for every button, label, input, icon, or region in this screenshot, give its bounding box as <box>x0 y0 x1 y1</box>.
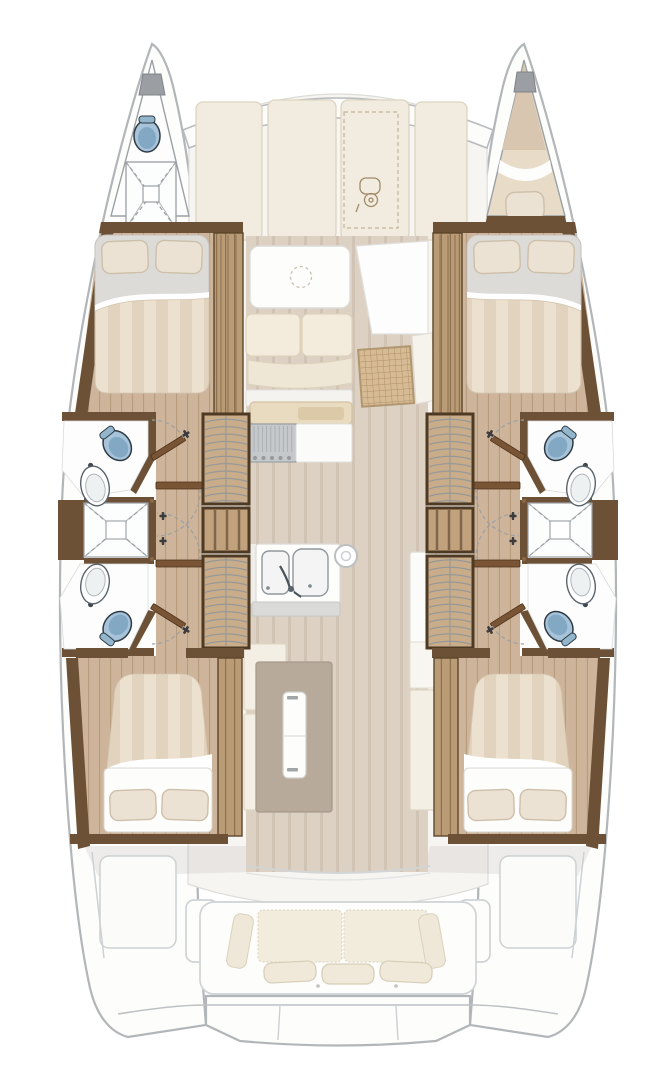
forward-wall <box>99 222 243 233</box>
cooktop <box>250 424 296 462</box>
seat-pillow <box>264 961 317 984</box>
wall <box>70 834 228 844</box>
counter-inset <box>298 407 344 420</box>
pillow <box>101 240 148 274</box>
duvet <box>95 298 209 393</box>
catamaran-floor-plan: Catamaran interior deck plan — 4 cabins,… <box>0 0 659 1080</box>
double-bed <box>95 235 209 393</box>
shower-tray <box>126 162 176 228</box>
counter-edge <box>252 602 340 616</box>
pillow <box>161 789 208 821</box>
wall <box>148 412 156 458</box>
seat-pillow <box>322 964 374 984</box>
back-cushion <box>258 910 342 962</box>
sun-pad <box>415 102 467 240</box>
deck-fitting <box>316 984 320 988</box>
pillow <box>155 240 202 274</box>
sink-basin <box>262 551 289 594</box>
wardrobe <box>218 658 242 836</box>
anchor-locker-hatch <box>139 74 165 95</box>
sink-basin <box>293 549 328 596</box>
engine-hatch <box>500 856 576 948</box>
salon-table <box>250 246 350 308</box>
sofa-cushion <box>302 314 352 356</box>
sun-pad <box>268 100 336 240</box>
hinge <box>150 499 154 503</box>
pillow <box>109 789 156 821</box>
back-cushion <box>344 910 428 962</box>
shared-shower <box>84 503 148 557</box>
hinge <box>150 557 154 561</box>
support-pole <box>335 545 357 567</box>
sun-pad <box>196 102 262 240</box>
sofa-cushion <box>246 314 300 356</box>
island-appliance <box>283 692 306 778</box>
sun-pad <box>341 100 409 240</box>
rattan-table <box>358 346 414 406</box>
cabin-door <box>156 482 202 489</box>
cabin-door <box>156 560 202 567</box>
port-aft-cabin: Port aft double cabin: bed with 2 pillow… <box>66 648 244 849</box>
drain-dot <box>308 584 312 588</box>
shower-drain <box>106 521 126 539</box>
cockpit: Aft cockpit bench with cushions and swim… <box>186 900 490 994</box>
salon-galley: Salon: dinette table, sofa cushions, rat… <box>244 236 438 880</box>
double-bed <box>104 674 212 832</box>
wall <box>84 558 154 564</box>
wall <box>76 648 128 658</box>
engine-hatch <box>100 856 176 948</box>
companionway-stairs: Companionway stairs between salon and hu… <box>203 414 249 648</box>
port-forward-cabin: Port forward double cabin: bed with 2 pi… <box>74 222 243 433</box>
deck-fitting <box>394 984 398 988</box>
counter <box>296 424 352 462</box>
wall <box>186 648 244 658</box>
wall <box>148 500 156 560</box>
stair-landing <box>203 508 249 552</box>
platform-step <box>206 996 470 1046</box>
wall <box>62 412 154 421</box>
shower-drain <box>143 186 159 202</box>
deck-hatch <box>514 72 536 92</box>
wall <box>58 500 84 560</box>
drain-dot <box>266 586 270 590</box>
seat-pillow <box>380 961 433 984</box>
duvet <box>107 674 209 768</box>
foredeck: Foredeck sun pads with tender locker and… <box>196 100 467 240</box>
